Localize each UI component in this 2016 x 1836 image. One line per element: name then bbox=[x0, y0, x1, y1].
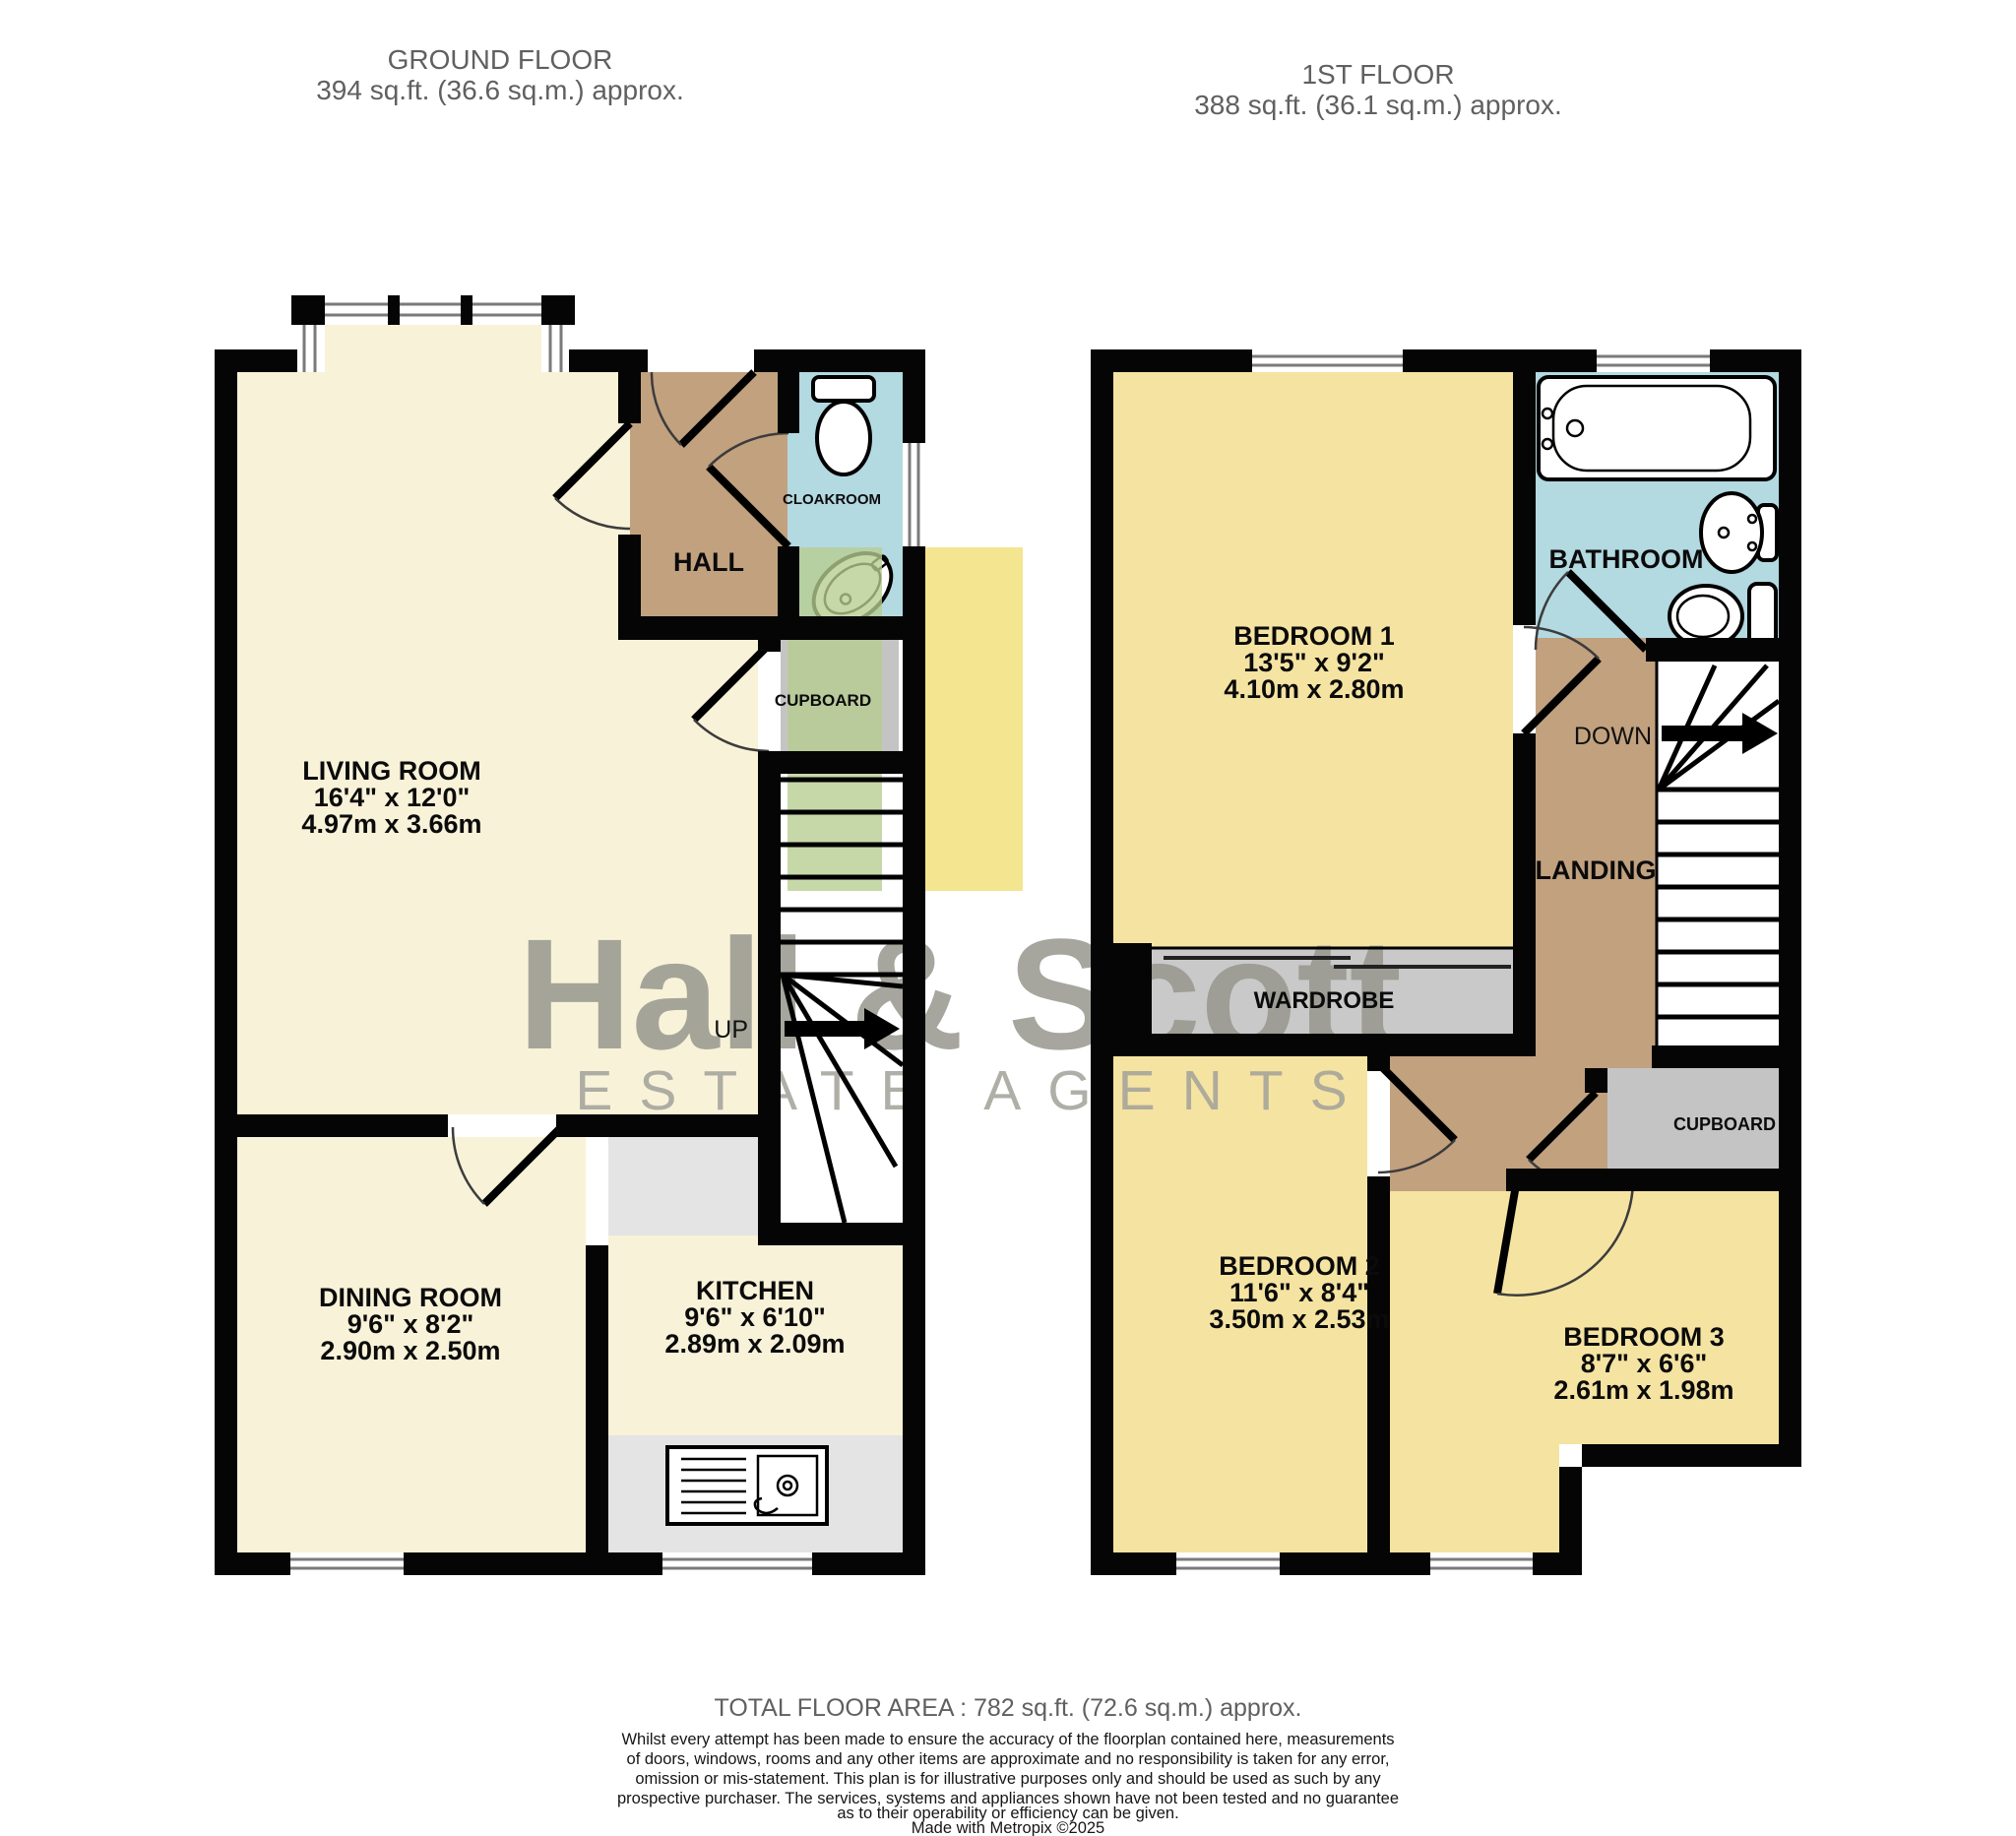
bathroom-label: BATHROOM bbox=[1549, 544, 1704, 574]
wardrobe-label: WARDROBE bbox=[1254, 987, 1395, 1014]
disclaimer-line-2: of doors, windows, rooms and any other i… bbox=[627, 1750, 1390, 1768]
bathroom-window bbox=[1597, 349, 1710, 372]
disclaimer-line-3: omission or mis-statement. This plan is … bbox=[635, 1770, 1381, 1788]
hall-label: HALL bbox=[673, 547, 744, 577]
bathroom-toilet-icon bbox=[1669, 584, 1776, 647]
bedroom1-window bbox=[1252, 349, 1403, 372]
plan-headers: GROUND FLOOR 394 sq.ft. (36.6 sq.m.) app… bbox=[316, 44, 1562, 120]
ground-floor-title: GROUND FLOOR bbox=[388, 44, 613, 75]
kitchen-sink-icon bbox=[667, 1447, 827, 1524]
bathroom-sink-icon bbox=[1701, 493, 1777, 572]
bay-window-floor bbox=[325, 325, 541, 372]
living-room-dims-imperial: 16'4" x 12'0" bbox=[314, 783, 471, 812]
bedroom3-label: BEDROOM 3 bbox=[1563, 1322, 1725, 1352]
dining-room-label: DINING ROOM bbox=[319, 1283, 502, 1312]
cloakroom-toilet-icon bbox=[813, 377, 874, 475]
dining-room-dims-metric: 2.90m x 2.50m bbox=[320, 1336, 500, 1365]
bedroom3-floor-lower bbox=[1390, 1444, 1559, 1552]
bedroom3-floor bbox=[1390, 1191, 1779, 1444]
up-label: UP bbox=[714, 1016, 748, 1044]
first-floor-area: 388 sq.ft. (36.1 sq.m.) approx. bbox=[1194, 90, 1562, 120]
metropix-credit: Made with Metropix ©2025 bbox=[912, 1819, 1105, 1836]
disclaimer-line-1: Whilst every attempt has been made to en… bbox=[621, 1731, 1394, 1748]
dining-window bbox=[290, 1552, 404, 1575]
living-room-label: LIVING ROOM bbox=[302, 756, 481, 786]
bedroom3-window bbox=[1430, 1552, 1533, 1575]
bath-tub-icon bbox=[1539, 377, 1775, 479]
down-arrow-head bbox=[1742, 713, 1778, 754]
first-cupboard-label: CUPBOARD bbox=[1673, 1114, 1776, 1134]
kitchen-dims-metric: 2.89m x 2.09m bbox=[664, 1329, 845, 1359]
kitchen-dims-imperial: 9'6" x 6'10" bbox=[684, 1302, 826, 1332]
living-room-dims-metric: 4.97m x 3.66m bbox=[301, 809, 481, 839]
first-floor-title: 1ST FLOOR bbox=[1301, 59, 1454, 90]
bedroom3-dims-imperial: 8'7" x 6'6" bbox=[1581, 1349, 1708, 1378]
kitchen-counter-top bbox=[608, 1137, 778, 1235]
bay-window bbox=[291, 295, 575, 325]
ground-cupboard-label: CUPBOARD bbox=[775, 691, 871, 710]
cloakroom-window bbox=[903, 443, 925, 546]
cloakroom-label: CLOAKROOM bbox=[783, 491, 881, 508]
watermark-green-block bbox=[787, 547, 882, 891]
bedroom3-dims-metric: 2.61m x 1.98m bbox=[1553, 1375, 1733, 1405]
bedroom1-label: BEDROOM 1 bbox=[1233, 621, 1395, 651]
kitchen-window bbox=[662, 1552, 812, 1575]
hall-floor bbox=[630, 372, 787, 628]
bedroom2-window bbox=[1176, 1552, 1280, 1575]
down-label: DOWN bbox=[1574, 723, 1652, 750]
watermark-tagline: ESTATE AGENTS bbox=[575, 1059, 1373, 1122]
bedroom2-label: BEDROOM 2 bbox=[1219, 1251, 1380, 1281]
bedroom2-dims-imperial: 11'6" x 8'4" bbox=[1229, 1278, 1369, 1307]
landing-label: LANDING bbox=[1536, 855, 1657, 885]
kitchen-label: KITCHEN bbox=[696, 1276, 814, 1305]
bedroom1-dims-metric: 4.10m x 2.80m bbox=[1224, 674, 1404, 704]
dining-room-dims-imperial: 9'6" x 8'2" bbox=[347, 1309, 474, 1339]
bedroom2-dims-metric: 3.50m x 2.53m bbox=[1209, 1304, 1389, 1334]
ground-floor-area: 394 sq.ft. (36.6 sq.m.) approx. bbox=[316, 75, 684, 105]
floorplan-page: Hall & Scott ESTATE AGENTS bbox=[0, 0, 2016, 1836]
bedroom1-dims-imperial: 13'5" x 9'2" bbox=[1243, 648, 1385, 677]
footer: TOTAL FLOOR AREA : 782 sq.ft. (72.6 sq.m… bbox=[617, 1694, 1399, 1836]
floorplan-canvas: Hall & Scott ESTATE AGENTS bbox=[0, 0, 2016, 1836]
total-floor-area: TOTAL FLOOR AREA : 782 sq.ft. (72.6 sq.m… bbox=[715, 1694, 1302, 1722]
first-floor-stairs bbox=[1657, 662, 1779, 1045]
